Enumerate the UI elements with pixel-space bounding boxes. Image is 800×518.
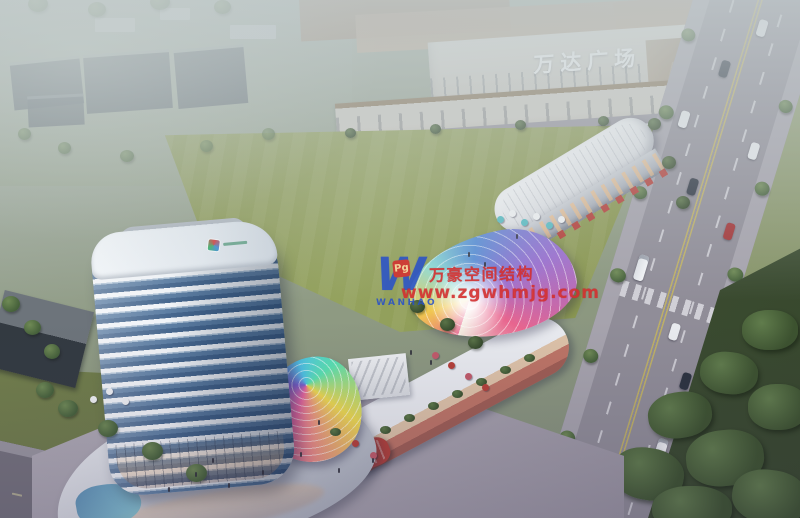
crosswalk xyxy=(619,280,717,324)
umbrella xyxy=(558,216,565,223)
hotel-tower xyxy=(89,218,297,497)
umbrella xyxy=(533,213,540,220)
umbrella xyxy=(448,362,455,369)
pedestrian xyxy=(318,420,320,425)
pedestrian xyxy=(212,458,214,463)
car xyxy=(755,19,769,38)
car xyxy=(677,110,691,129)
umbrella xyxy=(482,384,489,391)
planter-shrub xyxy=(380,426,391,434)
tree xyxy=(214,0,231,14)
tree xyxy=(262,128,275,140)
tree xyxy=(58,142,71,154)
umbrella xyxy=(122,398,129,405)
hall-roof-ridges xyxy=(351,356,406,397)
planter-shrub xyxy=(500,366,511,374)
watermark-url: www.zgwhmjg.com xyxy=(401,283,600,303)
pedestrian xyxy=(262,470,264,475)
umbrella xyxy=(521,219,528,226)
tree-clump xyxy=(652,486,732,518)
umbrella xyxy=(509,210,516,217)
distant-building xyxy=(83,52,173,114)
tree-clump xyxy=(748,384,800,430)
pedestrian xyxy=(228,483,230,488)
tree xyxy=(200,140,213,152)
tree xyxy=(515,120,526,130)
car xyxy=(668,322,682,341)
pedestrian xyxy=(410,350,412,355)
pedestrian xyxy=(338,468,340,473)
distant-building xyxy=(230,25,276,39)
planter-shrub xyxy=(404,414,415,422)
tree xyxy=(24,320,41,335)
tree xyxy=(18,128,31,140)
logo-pg-badge: Pg xyxy=(392,259,411,278)
planter-shrub xyxy=(330,428,341,436)
umbrella xyxy=(352,440,359,447)
tree xyxy=(44,344,60,359)
tree xyxy=(58,400,78,417)
tree xyxy=(430,124,441,134)
tree-clump xyxy=(742,310,798,350)
umbrella xyxy=(432,352,439,359)
car xyxy=(747,142,761,161)
umbrella xyxy=(546,222,553,229)
tree xyxy=(598,116,609,126)
tree xyxy=(2,296,20,312)
tree xyxy=(120,150,134,162)
tower-brand-icon xyxy=(208,239,220,251)
distant-building xyxy=(27,97,84,128)
aerial-render-scene: 万达广场 xyxy=(0,0,800,518)
umbrella xyxy=(90,396,97,403)
tree xyxy=(36,382,54,398)
tree xyxy=(440,318,455,331)
pedestrian xyxy=(516,234,518,239)
pedestrian xyxy=(300,452,302,457)
tower-brand-text-mark xyxy=(223,241,247,246)
tree xyxy=(88,2,106,17)
tree xyxy=(142,442,163,460)
distant-building xyxy=(95,18,135,32)
distant-building xyxy=(160,8,190,20)
car xyxy=(722,222,736,241)
planter-shrub xyxy=(452,390,463,398)
tree xyxy=(98,420,118,437)
tree xyxy=(648,118,661,130)
car xyxy=(718,60,732,79)
pedestrian xyxy=(195,472,197,477)
umbrella xyxy=(465,373,472,380)
tree xyxy=(676,196,690,209)
pedestrian xyxy=(168,487,170,492)
pedestrian xyxy=(430,360,432,365)
umbrella xyxy=(106,388,113,395)
distant-building xyxy=(174,47,249,109)
pedestrian xyxy=(468,252,470,257)
planter-shrub xyxy=(428,402,439,410)
tree xyxy=(468,336,483,349)
pedestrian xyxy=(372,458,374,463)
tree xyxy=(662,156,676,169)
tree xyxy=(345,128,356,138)
umbrella xyxy=(497,216,504,223)
planter-shrub xyxy=(524,354,535,362)
